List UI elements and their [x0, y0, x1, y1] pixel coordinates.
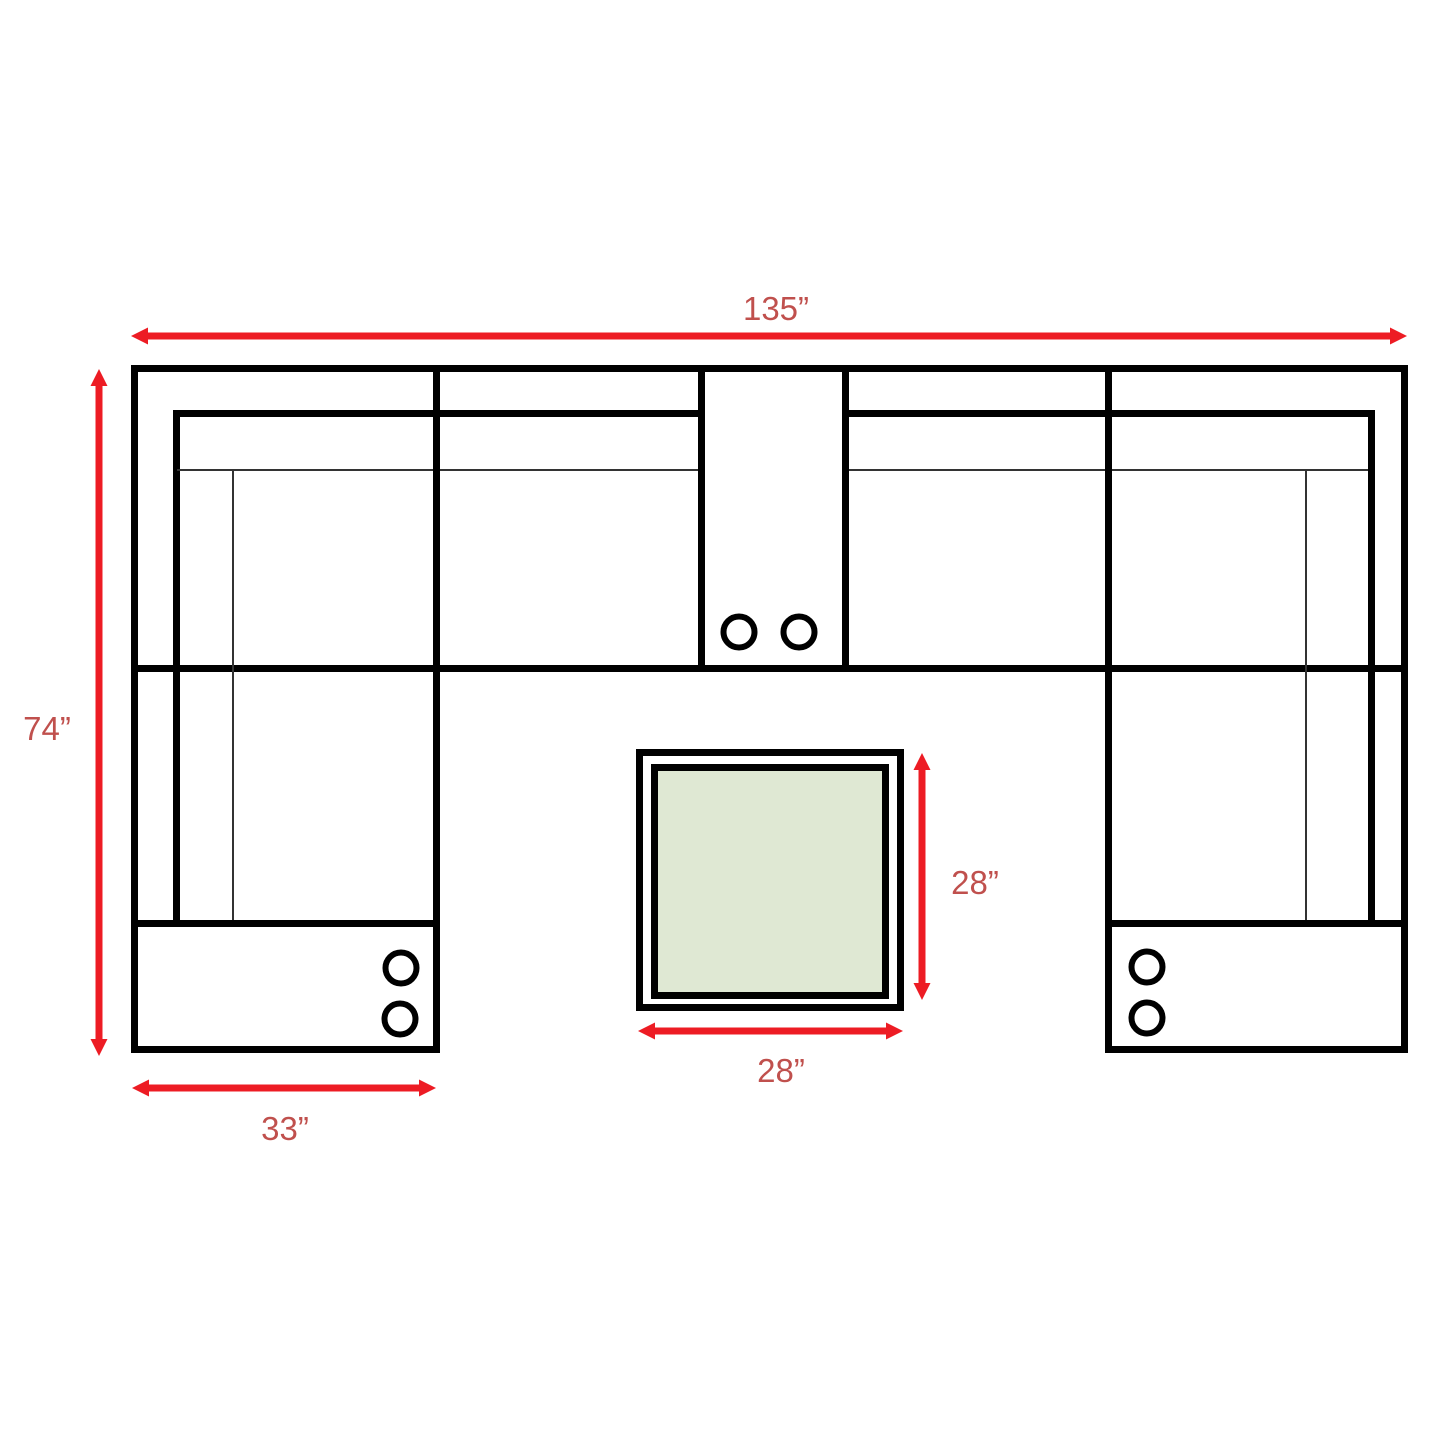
- svg-text:74”: 74”: [23, 710, 71, 747]
- svg-text:33”: 33”: [261, 1110, 309, 1147]
- svg-text:135”: 135”: [743, 290, 809, 327]
- svg-text:28”: 28”: [757, 1052, 805, 1089]
- svg-text:28”: 28”: [951, 864, 999, 901]
